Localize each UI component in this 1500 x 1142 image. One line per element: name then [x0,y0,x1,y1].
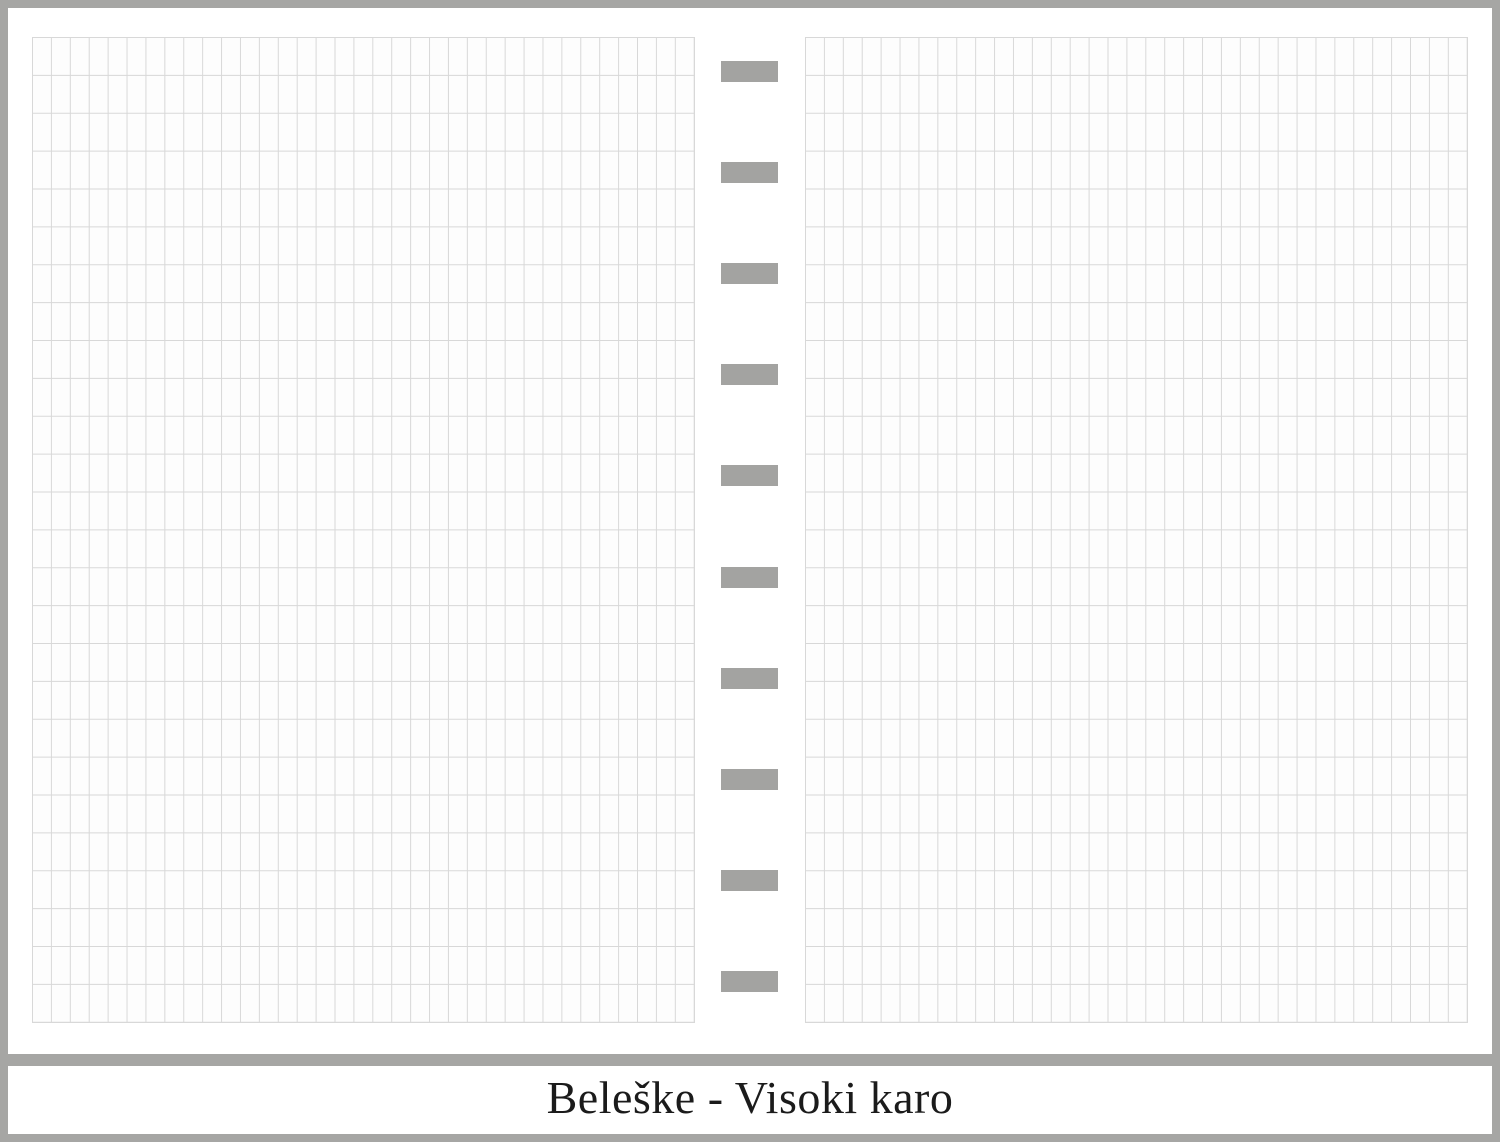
binding-tab [721,61,778,82]
page-title: Beleške - Visoki karo [547,1075,954,1125]
binding-column [721,61,778,992]
binding-tab [721,263,778,284]
footer-title-bar: Beleške - Visoki karo [8,1066,1492,1134]
right-page-grid[interactable] [805,37,1468,1023]
pages-area [8,8,1492,1054]
binding-tab [721,870,778,891]
notebook-spread-preview: Beleške - Visoki karo [0,0,1500,1142]
footer-divider [0,1054,1500,1066]
binding-tab [721,971,778,992]
binding-tab [721,364,778,385]
binding-tab [721,465,778,486]
binding-tab [721,567,778,588]
binding-tab [721,162,778,183]
binding-tab [721,668,778,689]
left-page-grid[interactable] [32,37,695,1023]
binding-tab [721,769,778,790]
